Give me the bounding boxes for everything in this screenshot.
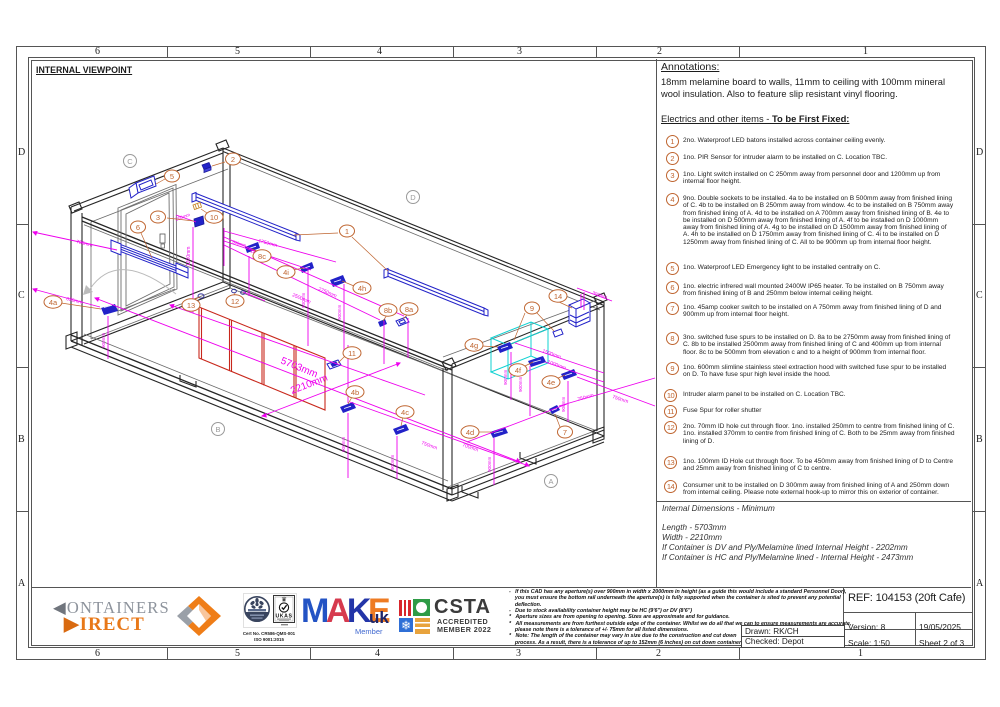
svg-text:1750mm: 1750mm	[257, 238, 277, 249]
svg-text:780mm: 780mm	[76, 239, 94, 249]
svg-text:4d: 4d	[466, 428, 474, 437]
svg-text:900mm: 900mm	[561, 397, 566, 412]
svg-text:2750mm: 2750mm	[317, 286, 337, 299]
svg-text:C: C	[127, 157, 133, 166]
svg-text:630mm: 630mm	[66, 296, 84, 306]
svg-text:7: 7	[563, 428, 567, 437]
svg-text:4b: 4b	[351, 388, 359, 397]
svg-text:❄: ❄	[401, 619, 411, 633]
svg-text:6: 6	[136, 223, 140, 232]
svg-text:750mm: 750mm	[420, 440, 438, 451]
svg-text:1000mm: 1000mm	[546, 359, 566, 371]
svg-text:500mm: 500mm	[232, 239, 247, 248]
svg-text:1: 1	[345, 227, 349, 236]
svg-text:4g: 4g	[470, 341, 478, 350]
svg-text:900mm: 900mm	[341, 437, 346, 452]
svg-text:12: 12	[231, 297, 239, 306]
svg-text:1500mm: 1500mm	[541, 348, 561, 360]
svg-text:750mm: 750mm	[577, 393, 595, 403]
svg-text:D: D	[410, 193, 416, 202]
svg-text:5: 5	[170, 172, 174, 181]
svg-text:900mm: 900mm	[390, 455, 395, 470]
svg-text:A: A	[548, 477, 553, 486]
svg-text:14: 14	[554, 292, 562, 301]
svg-text:3: 3	[156, 213, 160, 222]
svg-text:9: 9	[530, 304, 534, 313]
svg-text:4h: 4h	[358, 284, 366, 293]
svg-text:4f: 4f	[515, 366, 522, 375]
svg-text:B: B	[215, 425, 220, 434]
svg-text:900mm: 900mm	[301, 293, 306, 308]
svg-text:8a: 8a	[405, 305, 414, 314]
svg-text:♛: ♛	[281, 596, 287, 604]
svg-text:900mm: 900mm	[101, 333, 106, 348]
svg-text:13: 13	[187, 301, 195, 310]
svg-text:10: 10	[210, 213, 218, 222]
svg-text:4c: 4c	[401, 408, 409, 417]
svg-text:8b: 8b	[384, 306, 392, 315]
svg-text:4i: 4i	[283, 268, 289, 277]
svg-text:900mm: 900mm	[487, 457, 492, 472]
svg-text:2: 2	[231, 155, 235, 164]
svg-text:11: 11	[348, 349, 356, 358]
svg-text:8c: 8c	[258, 252, 266, 261]
svg-text:1200mm: 1200mm	[186, 247, 192, 266]
svg-text:UKAS: UKAS	[275, 614, 292, 620]
svg-text:4e: 4e	[547, 378, 555, 387]
svg-text:700mm: 700mm	[461, 442, 479, 453]
svg-text:900mm: 900mm	[503, 370, 508, 385]
svg-text:4a: 4a	[49, 298, 58, 307]
svg-text:900mm: 900mm	[518, 377, 523, 392]
svg-text:900mm: 900mm	[337, 305, 342, 320]
